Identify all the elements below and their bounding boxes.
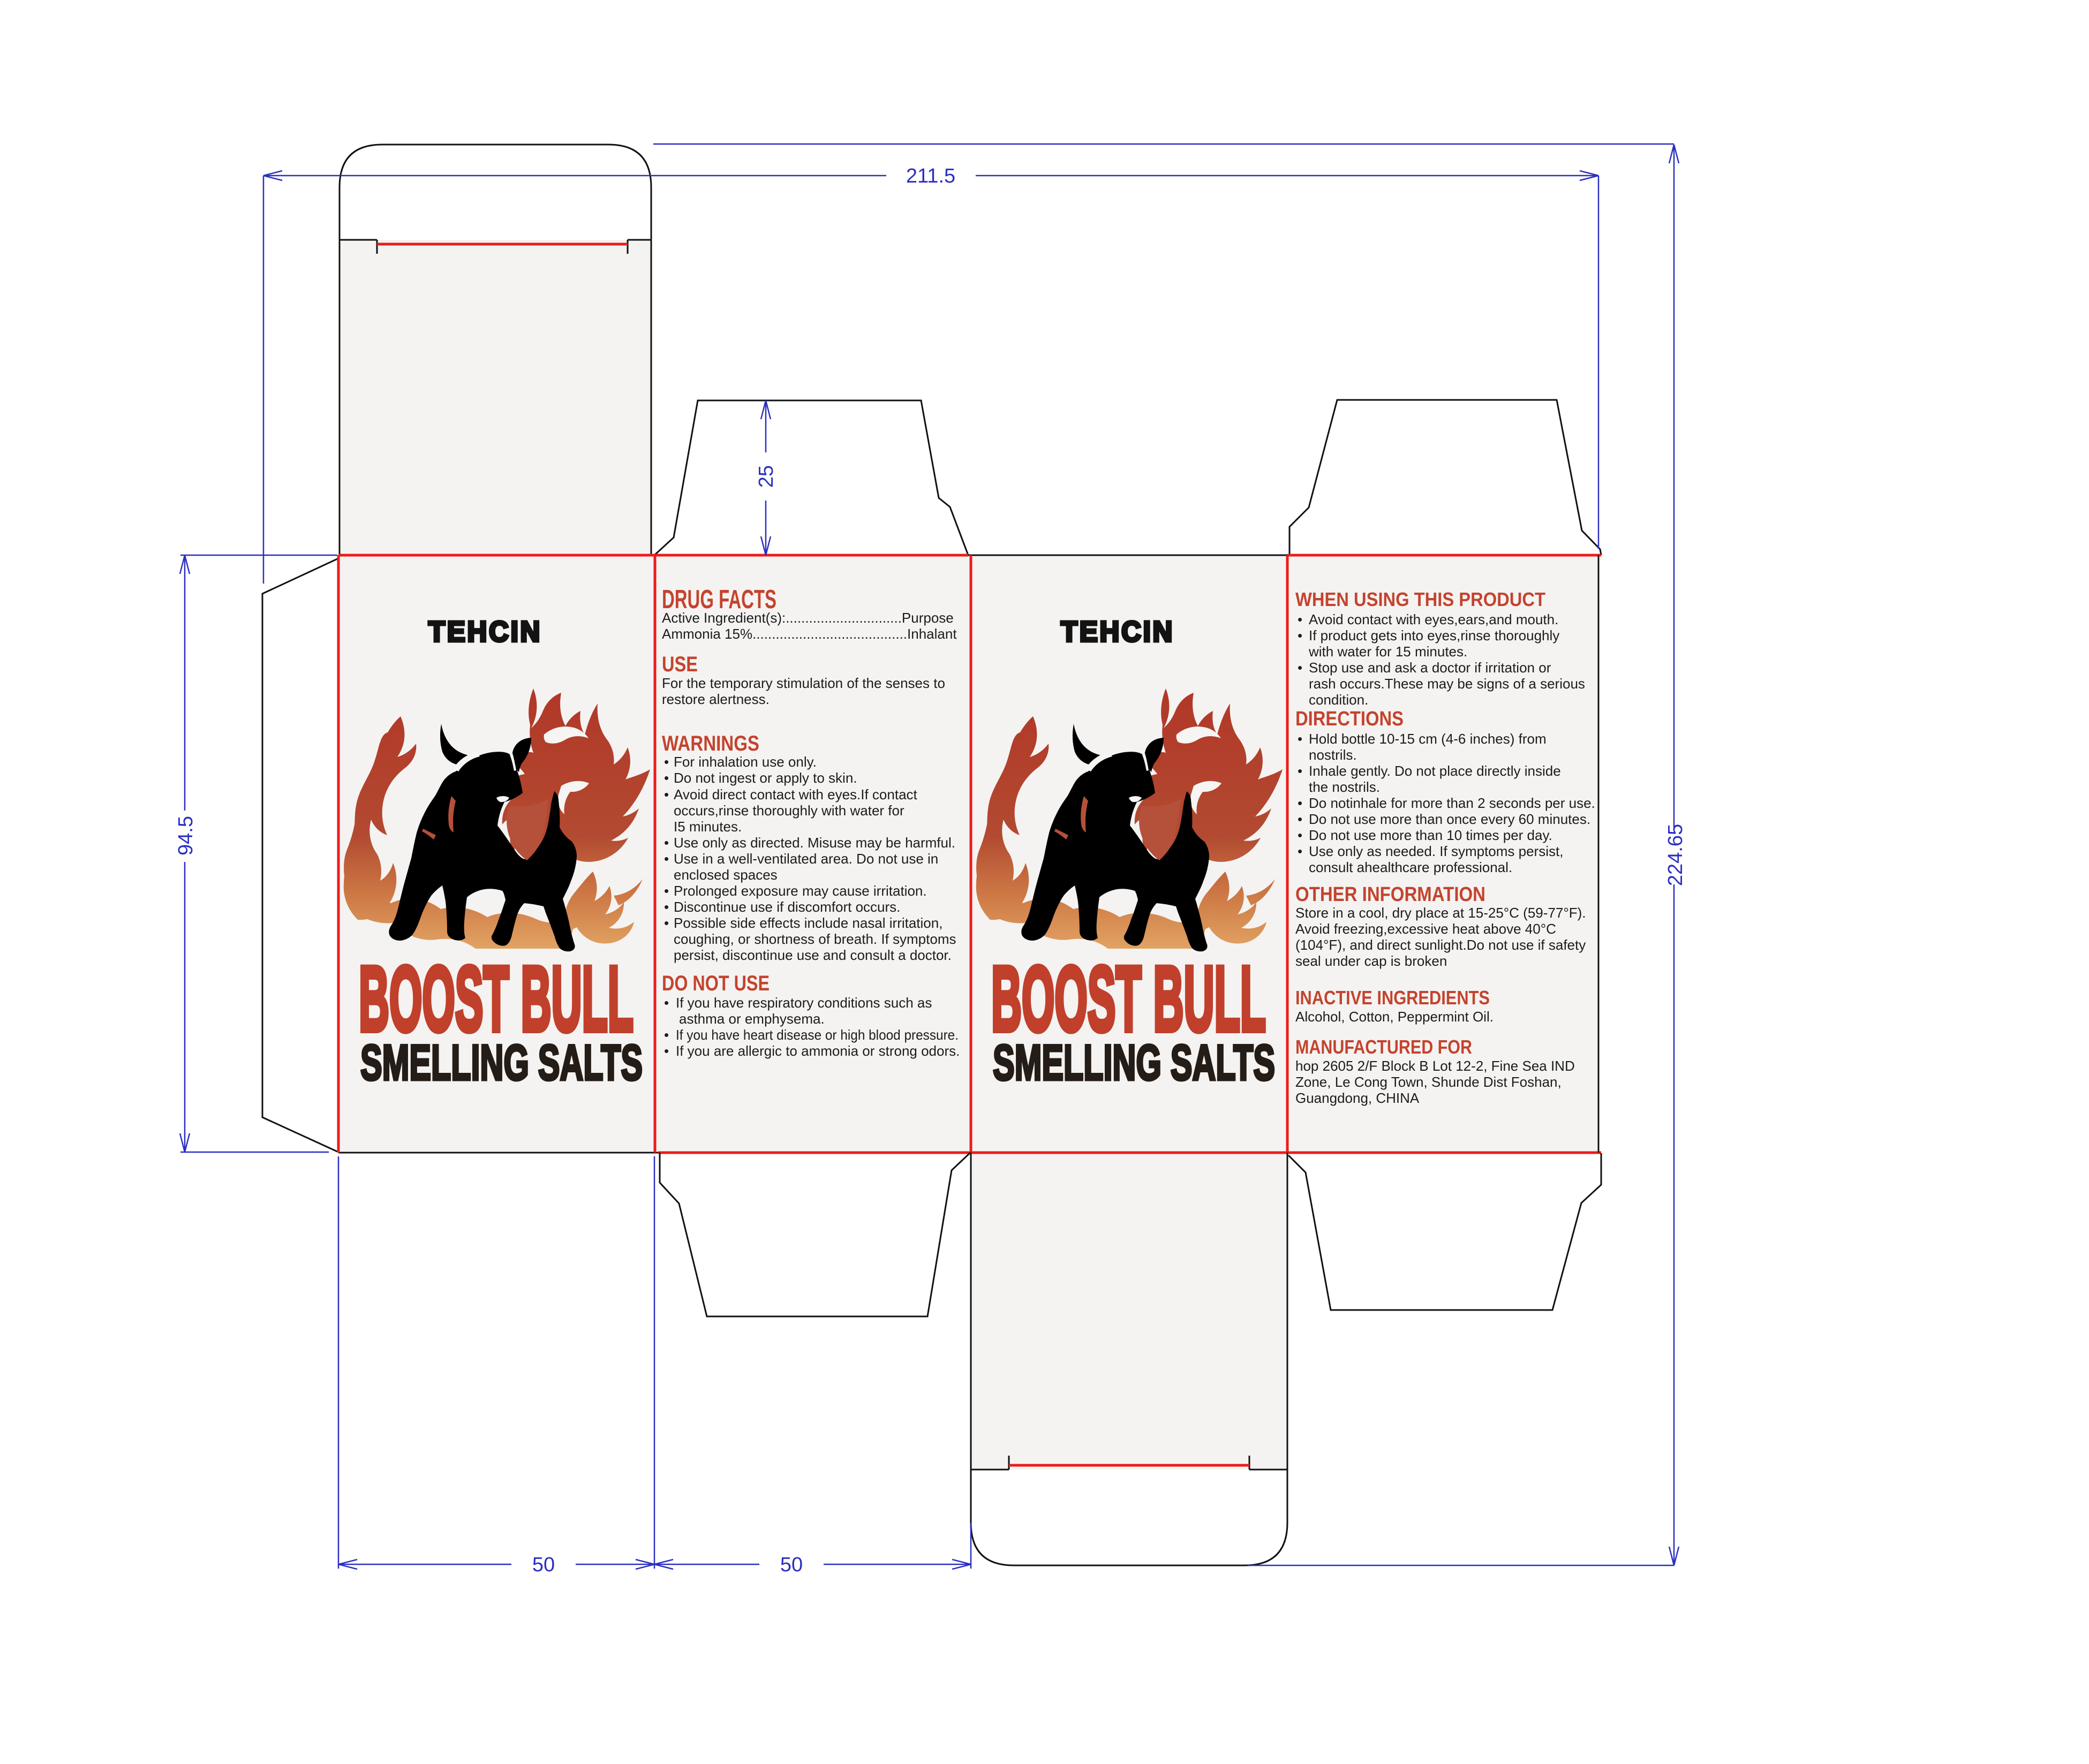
svg-text:224.65: 224.65: [1664, 824, 1687, 886]
svg-text:enclosed spaces: enclosed spaces: [674, 867, 778, 883]
svg-text:DIRECTIONS: DIRECTIONS: [1295, 708, 1404, 730]
svg-text:Prolonged exposure may cause i: Prolonged exposure may cause irritation.: [674, 883, 927, 899]
svg-text:rash occurs.These may be signs: rash occurs.These may be signs of a seri…: [1309, 676, 1585, 692]
svg-text:condition.: condition.: [1309, 692, 1368, 708]
svg-text:Do not ingest or apply to skin: Do not ingest or apply to skin.: [674, 770, 857, 786]
svg-text:Avoid direct contact with eyes: Avoid direct contact with eyes.If contac…: [674, 786, 918, 802]
svg-text:Avoid freezing,excessive heat: Avoid freezing,excessive heat above 40°C: [1295, 921, 1556, 937]
svg-text:Do notinhale for more than 2 s: Do notinhale for more than 2 seconds per…: [1309, 795, 1595, 811]
svg-text:If you are allergic to ammonia: If you are allergic to ammonia or strong…: [676, 1043, 960, 1059]
svg-text:WARNINGS: WARNINGS: [662, 732, 759, 755]
svg-text:MANUFACTURED FOR: MANUFACTURED FOR: [1295, 1036, 1472, 1058]
svg-text:hop 2605 2/F Block B Lot 12-2,: hop 2605 2/F Block B Lot 12-2, Fine Sea …: [1295, 1058, 1575, 1074]
svg-text:Do not use more than 10 times: Do not use more than 10 times per day.: [1309, 827, 1552, 843]
svg-text:occurs,rinse thoroughly with w: occurs,rinse thoroughly with water for: [674, 802, 904, 819]
svg-text:If product gets into eyes,rins: If product gets into eyes,rinse thorough…: [1309, 627, 1559, 643]
svg-text:nostrils.: nostrils.: [1309, 747, 1357, 763]
svg-text:DO NOT USE: DO NOT USE: [662, 972, 770, 995]
svg-text:with water for 15 minutes.: with water for 15 minutes.: [1308, 643, 1467, 660]
svg-text:OTHER INFORMATION: OTHER INFORMATION: [1295, 883, 1485, 906]
svg-text:•: •: [664, 770, 669, 786]
svg-text:•: •: [664, 883, 669, 899]
svg-text:USE: USE: [662, 653, 698, 676]
svg-text:Use only as directed. Misuse m: Use only as directed. Misuse may be harm…: [674, 835, 955, 851]
svg-text:Hold bottle 10-15 cm (4-6 inch: Hold bottle 10-15 cm (4-6 inches) from: [1309, 731, 1547, 747]
svg-text:Guangdong, CHINA: Guangdong, CHINA: [1295, 1090, 1420, 1106]
svg-text:•: •: [664, 1043, 669, 1059]
svg-text:•: •: [664, 995, 669, 1011]
svg-text:persist, discontinue use and c: persist, discontinue use and consult a d…: [674, 947, 952, 963]
svg-text:•: •: [1298, 811, 1302, 827]
svg-text:Zone, Le Cong Town, Shunde Dis: Zone, Le Cong Town, Shunde Dist Foshan,: [1295, 1074, 1562, 1090]
svg-text:211.5: 211.5: [906, 165, 955, 187]
svg-text:Active Ingredient(s):.........: Active Ingredient(s):...................…: [662, 610, 954, 626]
svg-text:Use only as needed. If symptom: Use only as needed. If symptoms persist,: [1309, 843, 1563, 859]
svg-text:WHEN USING THIS PRODUCT: WHEN USING THIS PRODUCT: [1295, 588, 1545, 610]
svg-text:INACTIVE INGREDIENTS: INACTIVE INGREDIENTS: [1295, 987, 1490, 1009]
svg-text:(104°F), and direct sunlight.D: (104°F), and direct sunlight.Do not use …: [1295, 937, 1586, 953]
svg-text:Use in a well-ventilated area.: Use in a well-ventilated area. Do not us…: [674, 851, 938, 867]
svg-text:•: •: [664, 835, 669, 851]
svg-text:the nostrils.: the nostrils.: [1309, 779, 1380, 795]
svg-text:•: •: [1298, 627, 1302, 643]
svg-text:•: •: [1298, 611, 1302, 627]
svg-text:Discontinue use if discomfort: Discontinue use if discomfort occurs.: [674, 899, 900, 915]
svg-text:•: •: [664, 851, 669, 867]
svg-text:25: 25: [755, 465, 778, 488]
svg-text:•: •: [1298, 660, 1302, 676]
svg-text:•: •: [664, 786, 669, 802]
svg-text:consult ahealthcare profession: consult ahealthcare professional.: [1309, 859, 1512, 875]
svg-text:Do not use more than once ever: Do not use more than once every 60 minut…: [1309, 811, 1590, 827]
svg-text:•: •: [664, 754, 669, 770]
svg-text:Alcohol, Cotton, Peppermint Oi: Alcohol, Cotton, Peppermint Oil.: [1295, 1009, 1494, 1025]
svg-text:•: •: [1298, 763, 1302, 779]
svg-text:Possible side effects include: Possible side effects include nasal irri…: [674, 915, 942, 931]
svg-text:asthma or emphysema.: asthma or emphysema.: [679, 1011, 825, 1027]
svg-text:Inhale gently. Do not place di: Inhale gently. Do not place directly ins…: [1309, 763, 1561, 779]
svg-text:•: •: [664, 915, 669, 931]
svg-text:If you have heart disease or h: If you have heart disease or high blood …: [676, 1027, 959, 1043]
svg-text:Avoid contact with eyes,ears,a: Avoid contact with eyes,ears,and mouth.: [1309, 611, 1558, 627]
svg-text:94.5: 94.5: [175, 816, 197, 855]
svg-text:•: •: [1298, 731, 1302, 747]
svg-text:Stop use and ask a doctor if i: Stop use and ask a doctor if irritation …: [1309, 660, 1551, 676]
svg-text:I5 minutes.: I5 minutes.: [674, 819, 742, 835]
svg-text:Store in a cool, dry place at: Store in a cool, dry place at 15-25°C (5…: [1295, 905, 1586, 921]
svg-text:restore alertness.: restore alertness.: [662, 691, 770, 707]
svg-text:50: 50: [780, 1554, 803, 1576]
svg-text:Ammonia 15%...................: Ammonia 15%.............................…: [662, 626, 957, 642]
svg-text:seal under cap is broken: seal under cap is broken: [1295, 953, 1447, 969]
svg-text:For the temporary stimulation: For the temporary stimulation of the sen…: [662, 675, 945, 691]
svg-text:50: 50: [532, 1554, 555, 1576]
svg-text:coughing, or shortness of brea: coughing, or shortness of breath. If sym…: [674, 931, 956, 947]
svg-text:For inhalation use only.: For inhalation use only.: [674, 754, 817, 770]
svg-text:•: •: [1298, 795, 1302, 811]
svg-text:•: •: [1298, 843, 1302, 859]
svg-text:•: •: [664, 899, 669, 915]
svg-text:•: •: [1298, 827, 1302, 843]
svg-text:If you have respiratory condit: If you have respiratory conditions such …: [676, 995, 932, 1011]
svg-text:•: •: [664, 1027, 669, 1043]
